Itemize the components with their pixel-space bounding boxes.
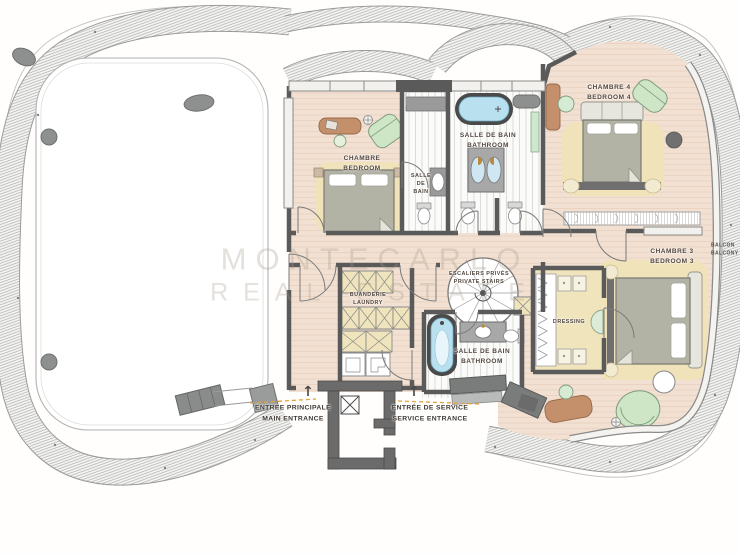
radiator-louver-icon [564, 212, 700, 225]
bed-icon-bedroom1 [314, 168, 403, 232]
room-label-bath-small: SALLE DE BAIN [411, 172, 431, 196]
bench-icon-bath [513, 95, 540, 108]
towel-rack-icon [531, 112, 539, 152]
vanity-icon-lower [460, 322, 506, 342]
pouf-icon-bedroom4 [558, 96, 574, 112]
round-table-icon-bedroom3 [653, 371, 675, 393]
room-label-bedroom3: CHAMBRE 3 BEDROOM 3 [650, 247, 694, 267]
room-label-private-stairs: ESCALIERS PRIVÉS PRIVATE STAIRS [449, 270, 509, 286]
decor-cross-icon [612, 418, 621, 427]
room-label-bath-lower: SALLE DE BAIN BATHROOM [454, 347, 510, 367]
bed-icon-bedroom3 [604, 265, 702, 377]
main-entrance-arrow-icon: ↑ [302, 385, 314, 399]
builtin-cabinet-icon [406, 97, 446, 111]
room-label-balcony: BALCON BALCONY [711, 243, 739, 258]
entrance-label-service: ENTRÉE DE SERVICE SERVICE ENTRANCE [392, 403, 468, 424]
room-label-bedroom4: CHAMBRE 4 BEDROOM 4 [587, 83, 631, 103]
side-table-icon-bedroom4 [666, 132, 682, 148]
pouf-icon-bedroom3 [559, 385, 573, 399]
floorplan-page: MONTECARLO REAL ESTATE CHAMBRE BEDROOM S… [0, 0, 740, 555]
entrance-label-main: ENTREE PRINCIPALE MAIN ENTRANCE [255, 403, 331, 424]
bathtub-icon-lower [427, 314, 457, 376]
room-label-bedroom: CHAMBRE BEDROOM [343, 154, 380, 174]
service-entrance-arrow-icon: ↑ [408, 385, 420, 399]
room-label-bath-top: SALLE DE BAIN BATHROOM [460, 131, 516, 151]
room-label-dressing: DRESSING [553, 318, 585, 326]
room-label-laundry: BUANDERIE LAUNDRY [350, 291, 387, 307]
cabinet-icon-bedroom4 [546, 84, 560, 130]
left-terrace [10, 45, 279, 430]
spiral-stairs-icon [448, 258, 518, 328]
bathtub-icon-top [455, 93, 513, 125]
double-vanity-icon [468, 148, 504, 192]
